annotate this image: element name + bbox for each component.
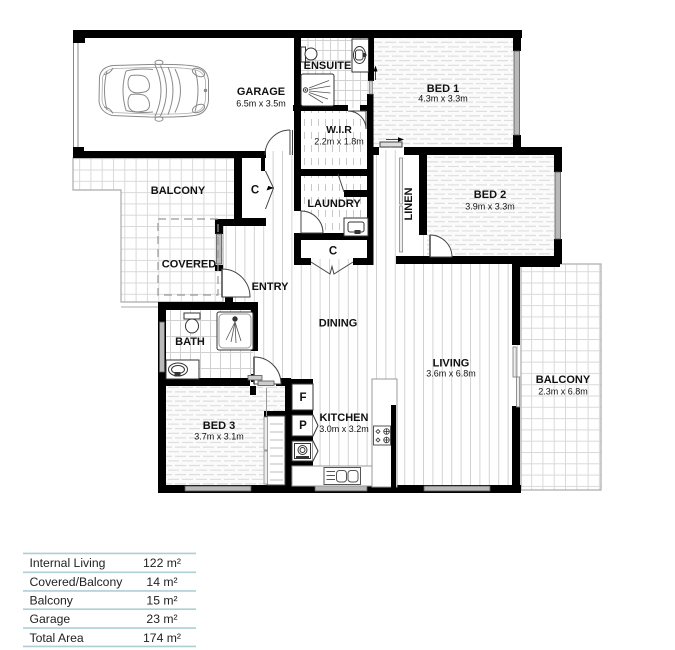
svg-text:C: C	[329, 246, 337, 258]
svg-text:LAUNDRY: LAUNDRY	[307, 198, 361, 210]
svg-text:Total Area: Total Area	[30, 631, 84, 645]
svg-text:Internal Living: Internal Living	[30, 556, 106, 570]
svg-text:14 m²: 14 m²	[146, 575, 177, 589]
svg-text:BALCONY: BALCONY	[151, 185, 206, 197]
svg-text:BED 2: BED 2	[474, 189, 506, 201]
svg-text:3.7m x 3.1m: 3.7m x 3.1m	[194, 432, 244, 442]
svg-text:3.6m x 6.8m: 3.6m x 6.8m	[426, 369, 476, 379]
svg-text:15 m²: 15 m²	[146, 594, 177, 608]
svg-text:3.0m x 3.2m: 3.0m x 3.2m	[319, 424, 369, 434]
svg-text:BED 3: BED 3	[203, 420, 235, 432]
svg-text:Covered/Balcony: Covered/Balcony	[30, 575, 124, 589]
svg-text:LINEN: LINEN	[403, 187, 415, 220]
svg-text:COVERED: COVERED	[162, 259, 216, 271]
svg-text:ENTRY: ENTRY	[252, 281, 290, 293]
svg-text:F: F	[299, 392, 306, 404]
svg-text:BATH: BATH	[175, 336, 205, 348]
svg-text:GARAGE: GARAGE	[237, 86, 285, 98]
svg-text:3.9m x 3.3m: 3.9m x 3.3m	[465, 202, 515, 212]
svg-text:KITCHEN: KITCHEN	[320, 412, 369, 424]
svg-text:C: C	[251, 185, 259, 197]
svg-text:W.I.R: W.I.R	[326, 124, 352, 136]
svg-text:122 m²: 122 m²	[143, 556, 181, 570]
svg-text:2.3m x 6.8m: 2.3m x 6.8m	[538, 387, 588, 397]
svg-text:4.3m x 3.3m: 4.3m x 3.3m	[418, 94, 468, 104]
svg-text:Balcony: Balcony	[30, 594, 74, 608]
svg-text:BALCONY: BALCONY	[536, 374, 591, 386]
svg-text:ENSUITE: ENSUITE	[304, 60, 352, 72]
svg-text:174 m²: 174 m²	[143, 631, 181, 645]
svg-text:Garage: Garage	[30, 612, 71, 626]
svg-text:23 m²: 23 m²	[146, 612, 177, 626]
svg-text:6.5m x 3.5m: 6.5m x 3.5m	[236, 99, 286, 109]
svg-text:2.2m x 1.8m: 2.2m x 1.8m	[314, 137, 364, 147]
svg-text:P: P	[299, 420, 307, 432]
svg-text:DINING: DINING	[319, 318, 358, 330]
